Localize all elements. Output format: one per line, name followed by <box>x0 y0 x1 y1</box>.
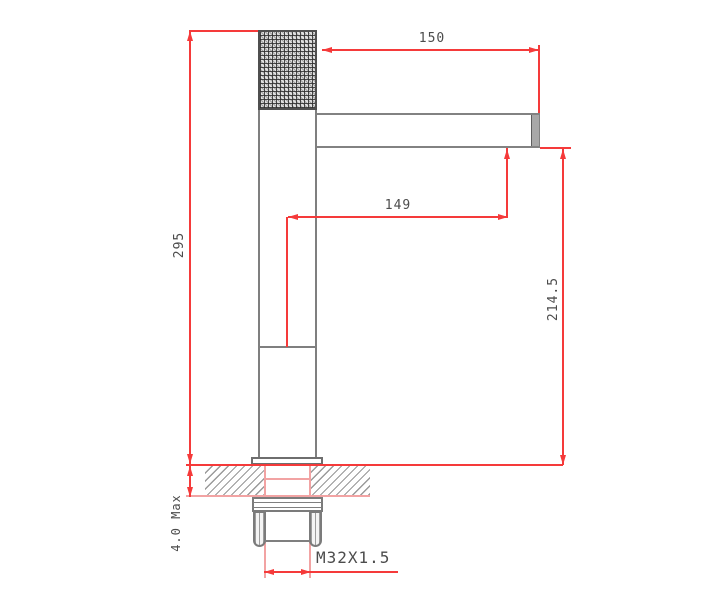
dim-295-arrow-down <box>187 454 193 464</box>
dim-m32-arrow-right <box>301 569 311 575</box>
dim-150-line <box>322 49 539 51</box>
dim-2145-line <box>562 148 564 465</box>
dim-149-arrow-left <box>288 214 298 220</box>
washer-line-2 <box>253 507 322 508</box>
countertop-hatch-left <box>205 466 265 496</box>
dim-2145-arrow-down <box>560 455 566 465</box>
spout-aerator-endcap <box>531 115 539 146</box>
mounting-washer <box>252 497 323 512</box>
dim-295-line <box>189 30 191 465</box>
washer-line-1 <box>253 502 322 503</box>
dim-40max-arrow-down <box>187 487 193 497</box>
dim-149-arrow-up <box>504 149 510 159</box>
dim-150-label: 150 <box>402 32 462 46</box>
dim-150-extension <box>538 45 540 113</box>
dim-295-label: 295 <box>173 215 187 275</box>
shank-end-line <box>265 540 310 542</box>
dim-295-arrow-up <box>187 31 193 41</box>
dim-2145-arrow-up <box>560 149 566 159</box>
faucet-spout <box>317 113 540 148</box>
dim-m32-line <box>264 571 398 573</box>
dim-40max-arrow-up <box>187 466 193 476</box>
dim-149-line <box>288 216 508 218</box>
knurled-handle <box>258 30 317 110</box>
mounting-stud-right <box>309 511 322 547</box>
dimension-drawing: 150 149 295 214.5 4.0 Max M32X1.5 <box>0 0 720 600</box>
dim-40max-label: 4.0 Max <box>169 483 183 563</box>
shank-inner-line <box>264 478 311 480</box>
dim-149-label: 149 <box>368 199 428 213</box>
dim-295-extension-top <box>189 30 258 32</box>
countertop-hatch-right <box>310 466 370 496</box>
dim-150-arrow-left <box>322 47 332 53</box>
dim-2145-extension-top <box>540 147 571 149</box>
dim-m32-label: M32X1.5 <box>316 551 390 565</box>
body-axis-line <box>286 217 288 347</box>
dim-m32-arrow-left <box>264 569 274 575</box>
dim-2145-label: 214.5 <box>547 269 561 329</box>
